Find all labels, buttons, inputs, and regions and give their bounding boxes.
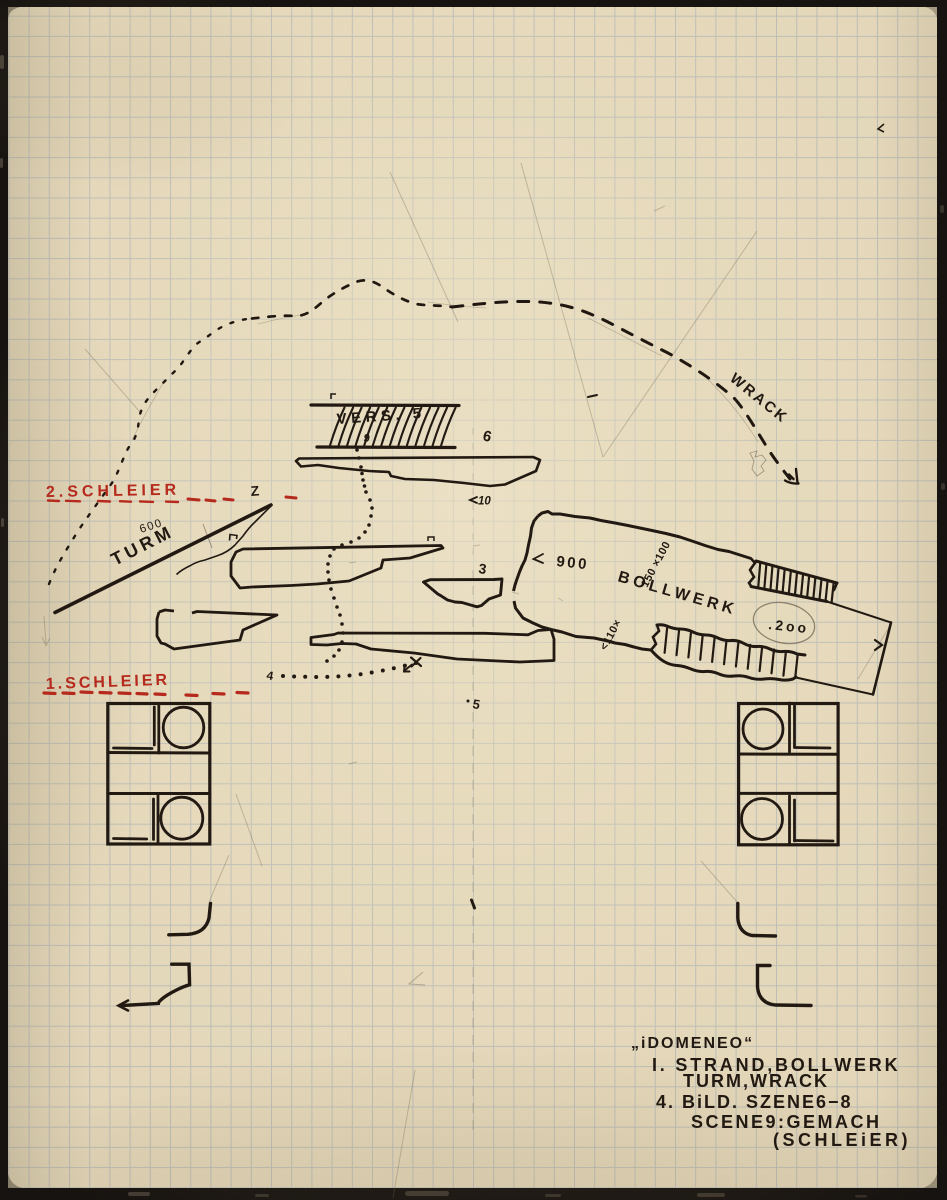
svg-text:4. BiLD. SZENE6−8: 4. BiLD. SZENE6−8 bbox=[656, 1092, 853, 1112]
svg-text:„iDOMENEO“: „iDOMENEO“ bbox=[631, 1035, 754, 1052]
svg-text:SCENE9:GEMACH: SCENE9:GEMACH bbox=[691, 1112, 882, 1132]
svg-text:Z: Z bbox=[250, 482, 260, 499]
svg-text:900: 900 bbox=[556, 553, 590, 573]
svg-text:TURM,WRACK: TURM,WRACK bbox=[683, 1071, 829, 1091]
svg-text:(SCHLEiER): (SCHLEiER) bbox=[773, 1130, 911, 1150]
svg-text:2.SCHLEIER: 2.SCHLEIER bbox=[46, 482, 181, 501]
svg-text:10: 10 bbox=[478, 496, 491, 508]
